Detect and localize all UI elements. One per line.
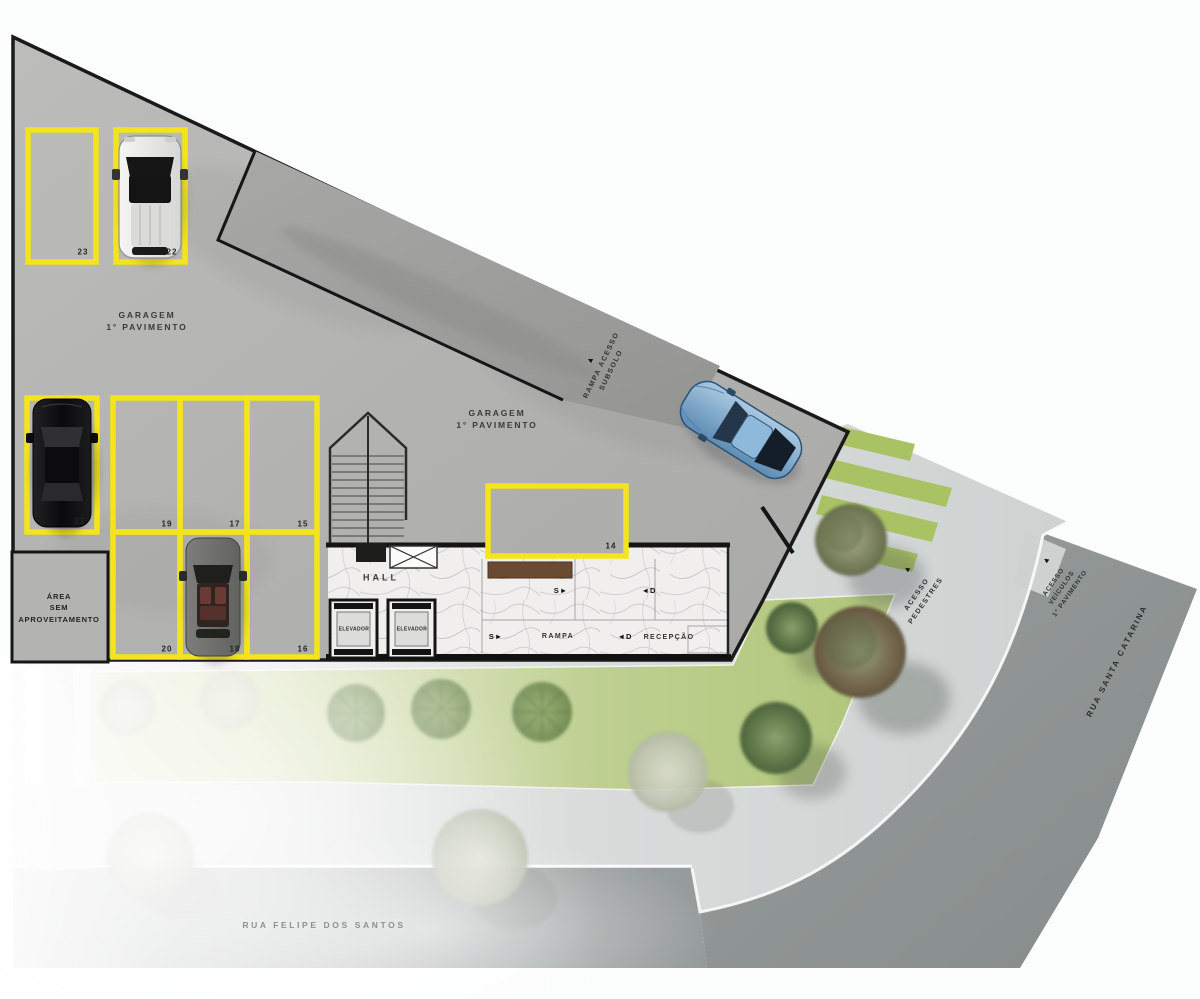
reception-desk [488, 562, 572, 578]
car-white-suv [112, 136, 188, 267]
elevator-2 [388, 600, 435, 658]
service-shaft [356, 543, 386, 562]
unused-area-box [12, 552, 108, 662]
site-plan: GARAGEM1° PAVIMENTO GARAGEM1° PAVIMENTO … [0, 0, 1200, 999]
hall [326, 543, 731, 658]
car-black-sedan [26, 399, 98, 535]
plan-drawing [0, 0, 1200, 999]
elevator-1 [330, 600, 377, 658]
void-shaft [390, 546, 437, 568]
car-gray [179, 538, 247, 665]
